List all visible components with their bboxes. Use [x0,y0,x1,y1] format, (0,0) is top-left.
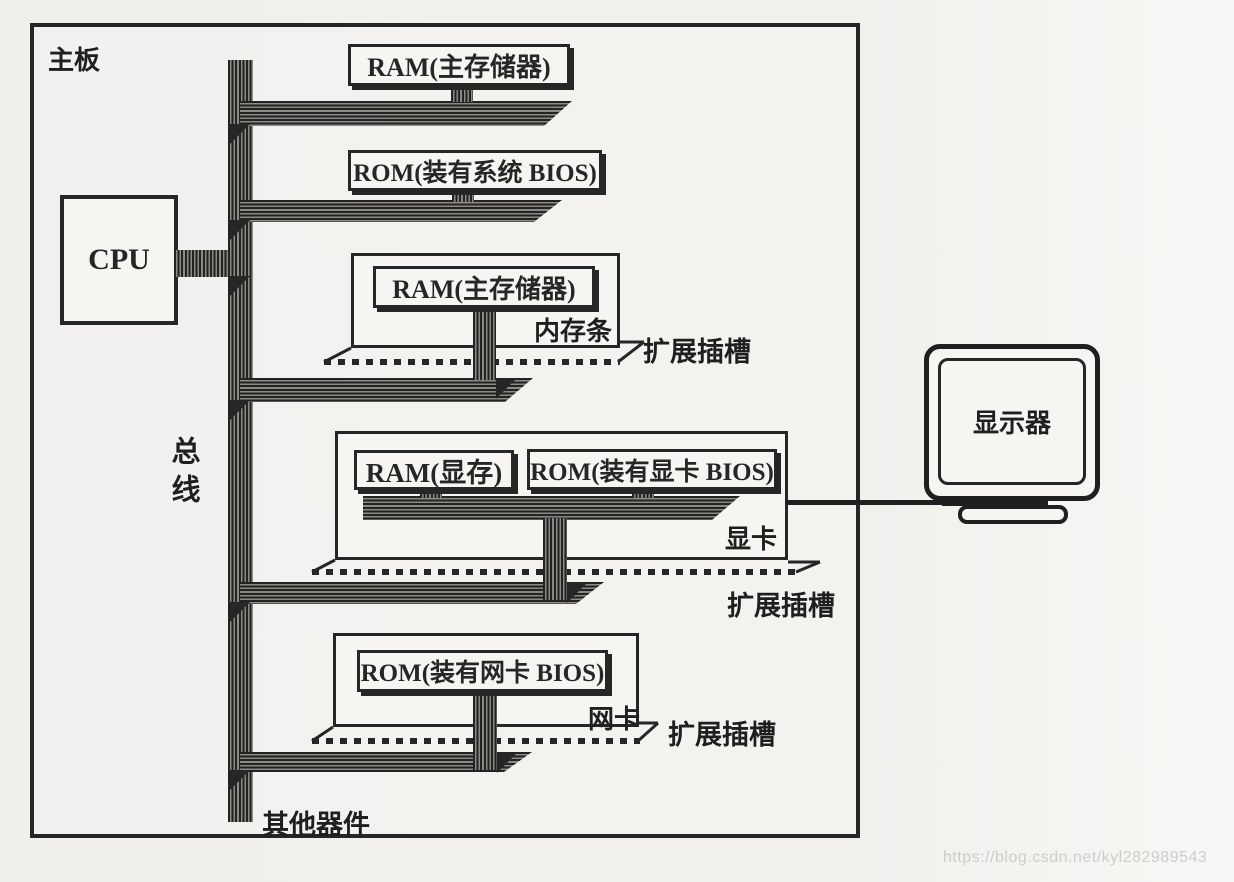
ram-main-connector [451,84,473,102]
motherboard-label: 主板 [48,40,100,77]
cpu-bus-connector [174,250,230,277]
graphics-ram-box: RAM(显存) [354,450,514,490]
graphics-ram-label: RAM(显存) [366,451,502,490]
diagram-canvas: 主板 总线 CPU RAM(主存储器) ROM(装有系统 BIOS) RAM(主… [0,0,1234,882]
cpu-box: CPU [60,195,178,325]
bus-junction-shadow [230,770,250,790]
memory-stick-name: 内存条 [534,311,612,348]
graphics-card-name: 显卡 [725,519,777,556]
branch-bus-rom [240,200,562,222]
bus-junction-shadow [230,400,250,420]
graphics-slot-connector [543,518,567,600]
network-card-name: 网卡 [588,699,640,736]
ram-main-label: RAM(主存储器) [367,47,550,84]
branch-bus-ram [240,101,572,126]
graphics-rom-box: ROM(装有显卡 BIOS) [527,449,777,490]
bus-junction-shadow [230,602,250,622]
graphics-rom-label: ROM(装有显卡 BIOS) [530,452,774,488]
monitor-label: 显示器 [973,403,1051,440]
connector-tip-shadow [497,753,517,773]
bus-junction-shadow [230,124,250,144]
ram-main-box: RAM(主存储器) [348,44,570,86]
rom-system-label: ROM(装有系统 BIOS) [353,153,597,189]
bus-junction-shadow [230,276,250,296]
network-slot-connector [473,690,497,770]
connector-tip-shadow [567,583,587,603]
watermark-text: https://blog.csdn.net/kyl282989543 [943,849,1207,867]
memory-chip-label: RAM(主存储器) [392,269,575,306]
graphics-internal-bus [363,496,740,520]
other-devices-label: 其他器件 [262,803,370,842]
system-bus [228,60,253,822]
bus-label: 总线 [162,436,204,512]
cpu-label: CPU [88,243,150,277]
network-rom-box: ROM(装有网卡 BIOS) [357,650,608,692]
monitor-screen: 显示器 [938,358,1086,485]
rom-system-box: ROM(装有系统 BIOS) [348,150,602,191]
monitor-base [958,505,1068,524]
memory-stick-connector [473,306,496,380]
branch-bus-memory [240,378,533,402]
network-rom-label: ROM(装有网卡 BIOS) [361,653,605,689]
expansion-slot-label-network: 扩展插槽 [668,713,776,752]
expansion-slot-label-memory: 扩展插槽 [643,330,751,369]
expansion-slot-label-graphics: 扩展插槽 [727,584,835,623]
bus-junction-shadow [230,220,250,240]
monitor-cable [786,500,946,505]
connector-tip-shadow [496,379,516,399]
memory-chip-box: RAM(主存储器) [373,266,595,308]
